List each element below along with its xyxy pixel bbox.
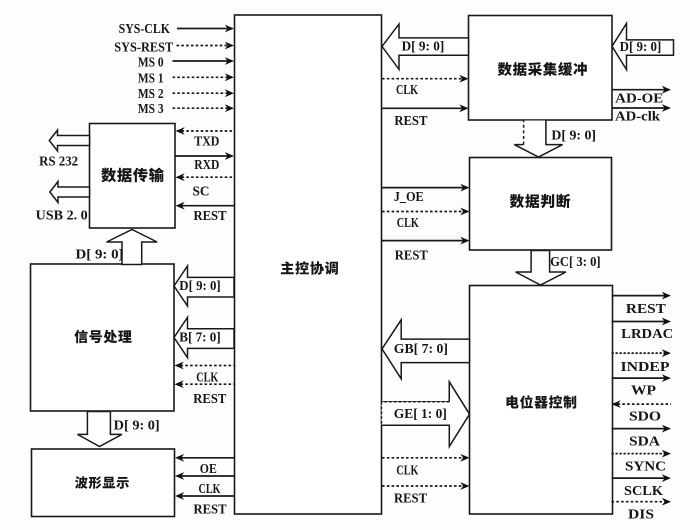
svg-text:MS 0: MS 0 bbox=[138, 56, 164, 71]
svg-text:GB[ 7: 0]: GB[ 7: 0] bbox=[394, 342, 448, 357]
svg-text:WP: WP bbox=[631, 383, 656, 398]
svg-text:CLK: CLK bbox=[196, 370, 218, 385]
svg-text:AD-clk: AD-clk bbox=[615, 109, 660, 124]
svg-text:REST: REST bbox=[394, 114, 428, 129]
svg-text:LRDAC: LRDAC bbox=[621, 327, 673, 342]
svg-text:D[ 9: 0]: D[ 9: 0] bbox=[620, 40, 662, 55]
svg-text:REST: REST bbox=[626, 302, 667, 317]
svg-text:SYS-REST: SYS-REST bbox=[114, 41, 173, 56]
svg-text:REST: REST bbox=[394, 492, 428, 507]
svg-text:REST: REST bbox=[395, 248, 429, 263]
svg-text:CLK: CLK bbox=[199, 482, 221, 497]
svg-text:D[ 9: 0]: D[ 9: 0] bbox=[76, 248, 124, 263]
svg-text:SC: SC bbox=[193, 184, 210, 199]
svg-text:GC[ 3: 0]: GC[ 3: 0] bbox=[550, 255, 601, 270]
svg-text:CLK: CLK bbox=[397, 216, 419, 231]
svg-text:CLK: CLK bbox=[396, 463, 418, 478]
svg-text:OE: OE bbox=[200, 462, 217, 477]
svg-text:TXD: TXD bbox=[194, 135, 219, 150]
svg-text:D[ 9: 0]: D[ 9: 0] bbox=[402, 40, 445, 55]
svg-text:INDEP: INDEP bbox=[621, 360, 670, 375]
svg-text:REST: REST bbox=[194, 209, 228, 224]
svg-text:SDO: SDO bbox=[629, 409, 661, 424]
svg-text:REST: REST bbox=[193, 392, 227, 407]
svg-text:DIS: DIS bbox=[628, 507, 654, 522]
svg-text:GE[ 1: 0]: GE[ 1: 0] bbox=[394, 407, 447, 422]
svg-text:RXD: RXD bbox=[194, 158, 219, 173]
svg-text:SDA: SDA bbox=[629, 434, 661, 449]
svg-text:SCLK: SCLK bbox=[624, 484, 663, 499]
svg-text:D[ 9: 0]: D[ 9: 0] bbox=[114, 418, 160, 433]
svg-text:CLK: CLK bbox=[396, 83, 418, 98]
svg-text:SYNC: SYNC bbox=[625, 459, 666, 474]
svg-text:REST: REST bbox=[194, 503, 228, 518]
svg-text:USB 2. 0: USB 2. 0 bbox=[36, 209, 88, 224]
svg-text:AD-OE: AD-OE bbox=[615, 91, 663, 106]
svg-text:MS 3: MS 3 bbox=[138, 102, 164, 117]
svg-text:J_OE: J_OE bbox=[394, 190, 424, 205]
svg-text:SYS-CLK: SYS-CLK bbox=[119, 22, 170, 37]
svg-text:MS 2: MS 2 bbox=[138, 87, 164, 102]
svg-text:D[ 9: 0]: D[ 9: 0] bbox=[551, 128, 596, 143]
svg-text:D[ 9: 0]: D[ 9: 0] bbox=[179, 279, 220, 294]
svg-text:RS 232: RS 232 bbox=[39, 155, 78, 170]
svg-text:B[ 7: 0]: B[ 7: 0] bbox=[179, 331, 220, 346]
svg-text:MS 1: MS 1 bbox=[138, 71, 164, 86]
